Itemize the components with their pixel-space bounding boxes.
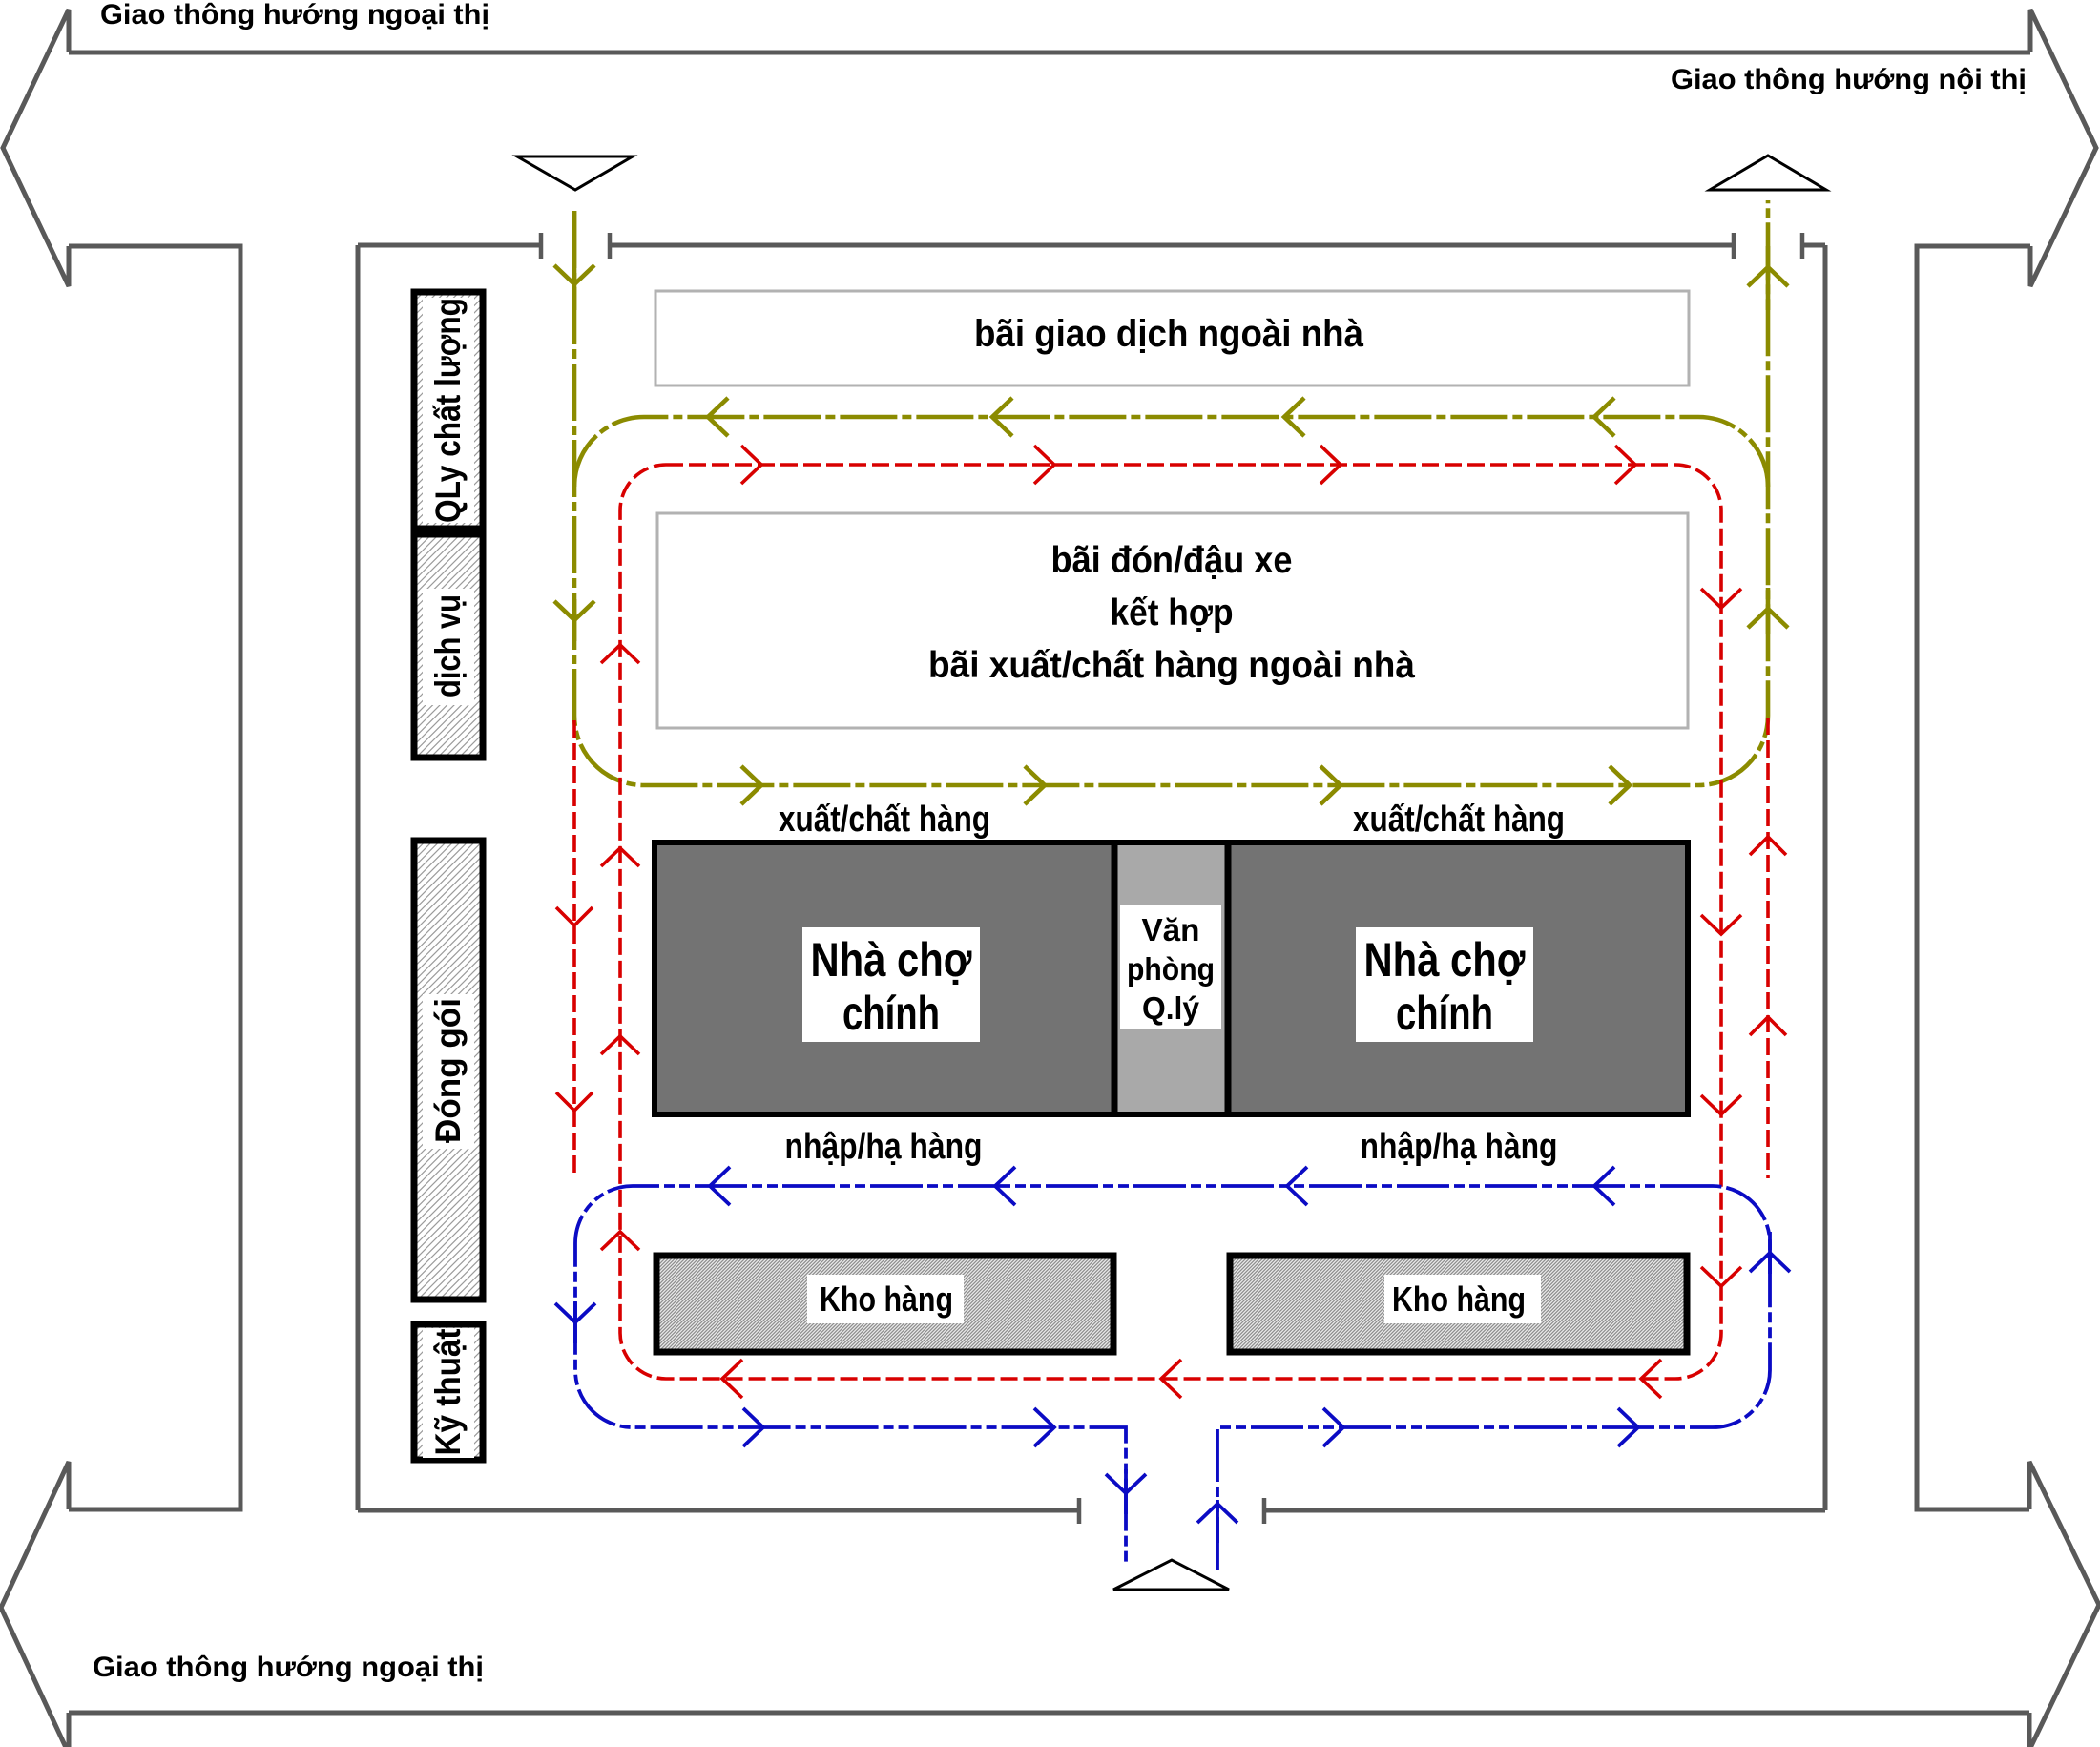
svg-text:QLy chất lượng: QLy chất lượng	[428, 298, 468, 523]
svg-text:Kỹ thuật: Kỹ thuật	[428, 1329, 468, 1456]
svg-text:bãi giao dịch ngoài nhà: bãi giao dịch ngoài nhà	[974, 313, 1364, 355]
svg-text:Giao thông hướng ngoại thị: Giao thông hướng ngoại thị	[100, 0, 489, 31]
svg-text:Văn: Văn	[1142, 912, 1200, 947]
svg-text:Đóng gói: Đóng gói	[428, 998, 468, 1143]
svg-text:bãi xuất/chất hàng ngoài nhà: bãi xuất/chất hàng ngoài nhà	[928, 645, 1415, 686]
svg-text:chính: chính	[842, 987, 940, 1040]
svg-text:chính: chính	[1396, 987, 1493, 1040]
svg-text:nhập/hạ hàng: nhập/hạ hàng	[1361, 1127, 1558, 1167]
svg-text:nhập/hạ hàng: nhập/hạ hàng	[785, 1127, 983, 1167]
svg-text:Nhà chợ: Nhà chợ	[1364, 933, 1526, 987]
svg-text:xuất/chất hàng: xuất/chất hàng	[1353, 800, 1565, 840]
svg-text:Kho hàng: Kho hàng	[820, 1279, 953, 1319]
svg-text:Giao thông hướng nội thị: Giao thông hướng nội thị	[1671, 64, 2027, 95]
svg-text:kết hợp: kết hợp	[1111, 593, 1234, 634]
svg-text:Q.lý: Q.lý	[1142, 990, 1200, 1026]
svg-text:Nhà chợ: Nhà chợ	[811, 933, 972, 987]
svg-text:phòng: phòng	[1127, 951, 1215, 987]
svg-text:bãi đón/đậu xe: bãi đón/đậu xe	[1051, 540, 1293, 581]
svg-text:xuất/chất hàng: xuất/chất hàng	[779, 800, 990, 840]
svg-text:Giao thông hướng ngoại thị: Giao thông hướng ngoại thị	[93, 1652, 484, 1683]
svg-text:Kho hàng: Kho hàng	[1392, 1279, 1526, 1319]
svg-text:dịch vụ: dịch vụ	[428, 594, 468, 697]
